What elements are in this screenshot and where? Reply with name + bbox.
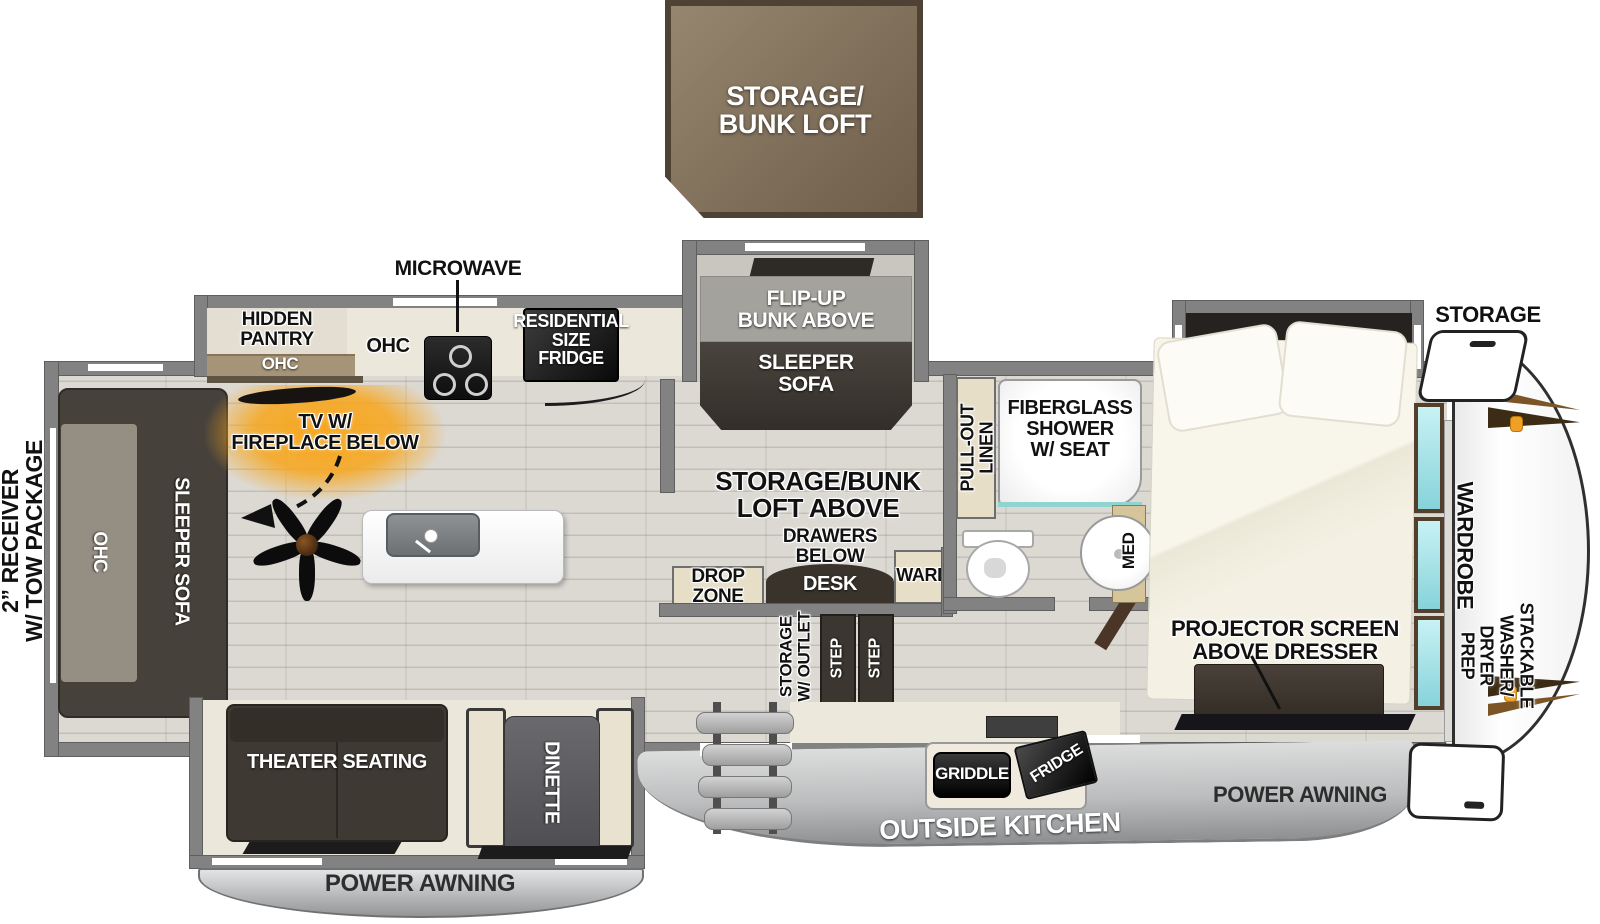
sink-faucet xyxy=(424,529,438,543)
bed-slide-top-wall xyxy=(1173,301,1423,313)
bunk-board xyxy=(750,258,874,276)
left-awning-label: POWER AWNING xyxy=(320,872,520,897)
pull-out-linen-label: PULL-OUT LINEN xyxy=(958,383,995,513)
rear-sofa-label: SLEEPER SOFA xyxy=(171,461,192,641)
step-2-label: STEP xyxy=(868,623,885,693)
projector-label: PROJECTOR SCREEN ABOVE DRESSER xyxy=(1158,618,1412,664)
projector-screen-rug xyxy=(1174,714,1415,730)
cap-marker-light-top xyxy=(1510,416,1523,432)
storage-outlet-label: STORAGE W/ OUTLET xyxy=(777,607,812,707)
bunk-slide-left-wall xyxy=(683,241,696,381)
bunk-slide-mark xyxy=(745,243,865,251)
dinette-bench-left xyxy=(466,708,506,848)
med-label: MED xyxy=(1120,526,1138,576)
counter-ohc-label: OHC xyxy=(356,336,420,357)
microwave-pointer xyxy=(456,280,459,332)
entry-door xyxy=(1407,742,1506,821)
kitchen-left-wall xyxy=(195,296,207,376)
rear-ohc-label: OHC xyxy=(89,522,109,582)
flip-up-bunk-label: FLIP-UP BUNK ABOVE xyxy=(706,288,906,332)
pantry-shelf-edge xyxy=(207,376,363,383)
kitchen-slide-mark xyxy=(393,298,497,306)
step-1-label: STEP xyxy=(830,623,847,693)
tv-fireplace-label: TV W/ FIREPLACE BELOW xyxy=(225,412,425,454)
bottom-wall-left xyxy=(45,743,202,756)
outside-griddle-label: GRIDDLE xyxy=(933,765,1011,783)
drop-zone-label: DROP ZONE xyxy=(676,567,760,607)
dresser xyxy=(1194,664,1384,718)
toilet-bowl xyxy=(966,540,1030,598)
desk-label: DESK xyxy=(776,574,884,595)
entry-steps xyxy=(690,698,800,838)
left-slide-mark-2 xyxy=(555,858,627,865)
bunk-loft-label: STORAGE/ BUNK LOFT xyxy=(695,82,895,138)
dinette-bench-right xyxy=(596,708,634,848)
bath-bottom-wall xyxy=(944,598,1054,610)
front-storage-label: STORAGE xyxy=(1432,304,1544,327)
wardrobe-mirror-2 xyxy=(1414,517,1444,613)
loft-above-label: STORAGE/BUNK LOFT ABOVE xyxy=(700,468,936,522)
rear-bumper-mark xyxy=(50,428,56,683)
rear-slide-mark xyxy=(88,364,163,371)
right-awning-label: POWER AWNING xyxy=(1200,784,1400,807)
left-slide-left-wall xyxy=(190,698,202,868)
bunk-slide-right-wall xyxy=(915,241,928,381)
bath-left-wall xyxy=(944,375,956,613)
rv-floorplan: STORAGE/ BUNK LOFT OHC SLEEPER SOFA 2” R… xyxy=(0,0,1600,924)
stove-icon xyxy=(424,336,492,400)
left-slide-mark-1 xyxy=(212,858,322,865)
wardrobe-mirror-1 xyxy=(1414,403,1444,513)
bed-pillow-right xyxy=(1277,320,1408,428)
microwave-label: MICROWAVE xyxy=(388,258,528,280)
bath-sink xyxy=(1080,515,1156,591)
stackable-washer-label: STACKABLE WASHER/ DRYER PREP xyxy=(1456,566,1535,746)
outside-kitchen-hatch xyxy=(986,716,1058,738)
front-storage-door xyxy=(1416,330,1529,402)
theater-floor-mat xyxy=(243,842,402,854)
bunk-sleeper-sofa-label: SLEEPER SOFA xyxy=(706,352,906,396)
dinette-label: DINETTE xyxy=(541,722,562,842)
shower-label: FIBERGLASS SHOWER W/ SEAT xyxy=(1000,398,1140,460)
pantry-ohc-label: OHC xyxy=(240,355,320,373)
hidden-pantry-label: HIDDEN PANTRY xyxy=(212,310,342,350)
galley-divider-wall xyxy=(661,380,674,492)
wardrobe-mirror-3 xyxy=(1414,616,1444,710)
receiver-label: 2” RECEIVER W/ TOW PACKAGE xyxy=(0,426,47,656)
theater-seating xyxy=(226,704,448,842)
ceiling-fan-icon xyxy=(247,485,367,605)
residential-fridge-label: RESIDENTIAL SIZE FRIDGE xyxy=(495,312,647,368)
theater-seating-label: THEATER SEATING xyxy=(234,752,440,773)
drawers-below-label: DRAWERS BELOW xyxy=(770,527,890,567)
dinette-floor-mat xyxy=(478,846,633,859)
